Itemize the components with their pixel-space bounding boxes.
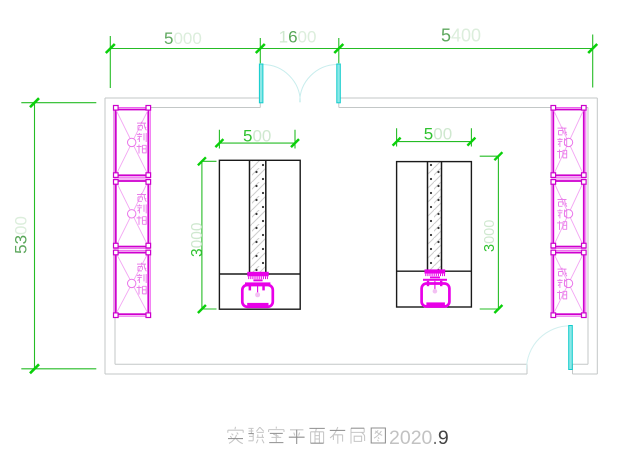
svg-text:500: 500 <box>424 125 452 144</box>
svg-text:3000: 3000 <box>189 222 206 257</box>
svg-text:3000: 3000 <box>482 220 498 252</box>
svg-text:5000: 5000 <box>164 29 202 48</box>
svg-text:5300: 5300 <box>12 216 31 254</box>
svg-text:1600: 1600 <box>279 28 317 47</box>
svg-text:500: 500 <box>243 127 271 146</box>
svg-text:2020.9: 2020.9 <box>389 427 449 449</box>
svg-text:5400: 5400 <box>441 26 481 46</box>
